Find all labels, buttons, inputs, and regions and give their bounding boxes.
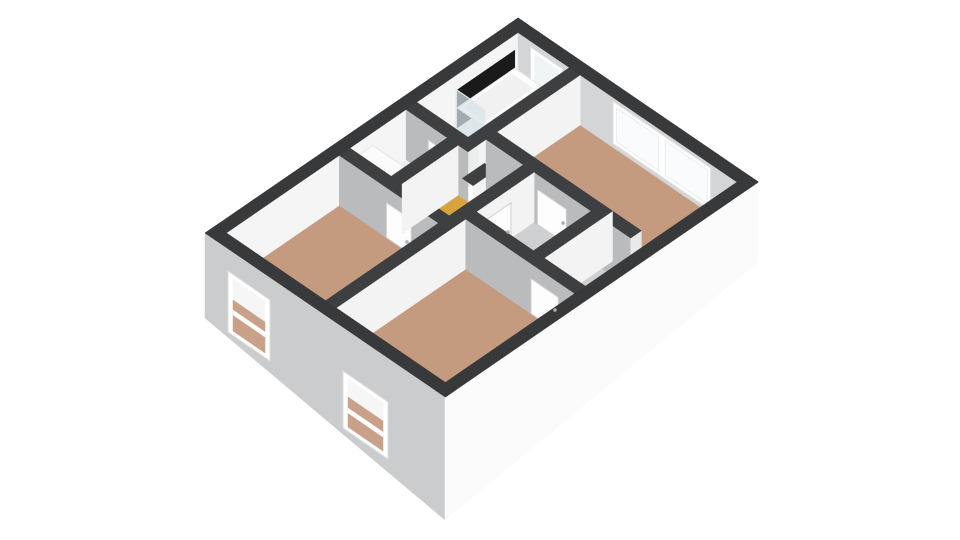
- handle-door-bedroom-left: [405, 240, 408, 243]
- floorplan-3d-render: [0, 0, 960, 540]
- floorplan-svg: [0, 0, 960, 540]
- handle-door-bedroom-right: [561, 221, 564, 224]
- handle-door-living-room: [506, 230, 509, 233]
- handle-door-nook: [553, 308, 556, 311]
